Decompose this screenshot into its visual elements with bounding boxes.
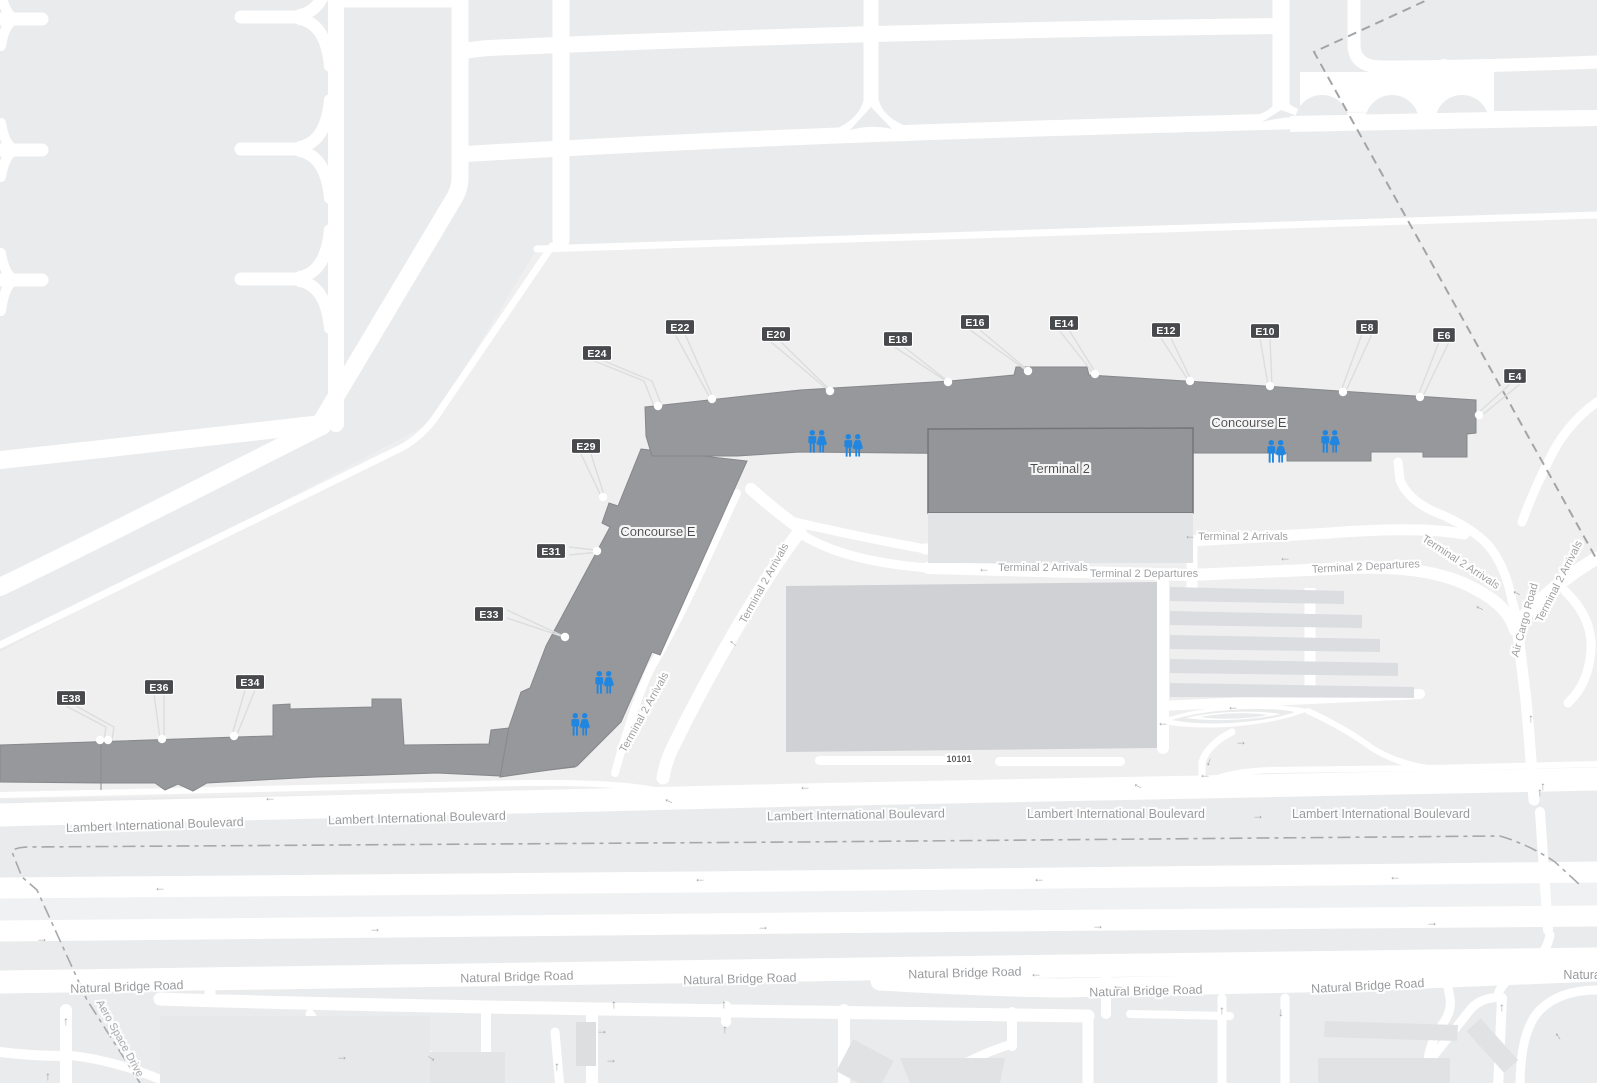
- svg-text:→: →: [605, 1052, 617, 1066]
- svg-text:←: ←: [1227, 699, 1239, 713]
- svg-text:↑: ↑: [554, 1059, 560, 1073]
- svg-text:←: ←: [1033, 871, 1045, 885]
- svg-text:Concourse E: Concourse E: [620, 524, 695, 539]
- svg-text:Lambert International Boulevar: Lambert International Boulevard: [1027, 807, 1205, 821]
- svg-text:Natural Bridge Road: Natural Bridge Road: [1089, 983, 1203, 1000]
- svg-text:E22: E22: [670, 322, 689, 334]
- svg-text:↑: ↑: [721, 997, 727, 1011]
- svg-text:←: ←: [1199, 767, 1211, 781]
- svg-text:↓: ↓: [1278, 1005, 1284, 1019]
- svg-text:E8: E8: [1360, 322, 1373, 334]
- svg-text:→: →: [1092, 918, 1104, 932]
- svg-text:E10: E10: [1255, 326, 1274, 338]
- svg-text:E38: E38: [61, 693, 80, 705]
- svg-text:E6: E6: [1437, 330, 1450, 342]
- svg-text:E14: E14: [1054, 318, 1073, 330]
- svg-text:←: ←: [694, 871, 706, 885]
- svg-text:←: ←: [1030, 966, 1042, 980]
- svg-text:↑: ↑: [1499, 1000, 1505, 1014]
- svg-text:→: →: [36, 931, 48, 945]
- svg-text:↑: ↑: [1537, 785, 1543, 799]
- svg-text:↑: ↑: [722, 1022, 728, 1036]
- svg-text:Natural Bridge Road: Natural Bridge Road: [908, 965, 1022, 982]
- svg-text:→: →: [369, 921, 381, 935]
- svg-text:Terminal 2 Departures: Terminal 2 Departures: [1090, 568, 1199, 580]
- svg-text:→: →: [1252, 808, 1264, 822]
- svg-text:←: ←: [1112, 978, 1124, 992]
- svg-text:E4: E4: [1508, 371, 1521, 383]
- svg-text:Terminal 2 Arrivals: Terminal 2 Arrivals: [1198, 531, 1288, 543]
- svg-text:←: ←: [264, 790, 276, 804]
- svg-text:Natural Bridge Road: Natural Bridge Road: [1563, 968, 1597, 982]
- svg-text:↑: ↑: [1219, 1003, 1225, 1017]
- svg-text:Natural Bridge Road: Natural Bridge Road: [460, 969, 574, 986]
- svg-text:→: →: [336, 1049, 348, 1063]
- svg-text:Terminal 2: Terminal 2: [1030, 461, 1090, 476]
- svg-text:E12: E12: [1156, 325, 1175, 337]
- svg-text:→: →: [1235, 734, 1247, 748]
- svg-text:←: ←: [978, 561, 990, 575]
- svg-text:→: →: [757, 919, 769, 933]
- svg-text:↑: ↑: [45, 1069, 51, 1083]
- svg-text:←: ←: [1157, 715, 1169, 729]
- svg-text:↑: ↑: [1528, 711, 1534, 725]
- svg-text:10101: 10101: [946, 754, 971, 764]
- svg-text:E20: E20: [766, 329, 785, 341]
- svg-text:Lambert International Boulevar: Lambert International Boulevard: [1292, 807, 1470, 821]
- svg-text:E33: E33: [479, 609, 498, 621]
- svg-text:←: ←: [1279, 550, 1291, 564]
- svg-text:←: ←: [799, 779, 811, 793]
- svg-text:E31: E31: [541, 546, 560, 558]
- svg-text:↑: ↑: [611, 997, 617, 1011]
- svg-text:Concourse E: Concourse E: [1211, 415, 1286, 430]
- svg-text:→: →: [1426, 915, 1438, 929]
- svg-text:E16: E16: [965, 317, 984, 329]
- svg-text:E29: E29: [576, 441, 595, 453]
- svg-text:E24: E24: [587, 348, 606, 360]
- svg-text:→: →: [596, 1023, 608, 1037]
- svg-text:Terminal 2 Arrivals: Terminal 2 Arrivals: [998, 562, 1088, 574]
- svg-text:←: ←: [154, 880, 166, 894]
- svg-text:E18: E18: [888, 334, 907, 346]
- svg-text:↑: ↑: [63, 1014, 69, 1028]
- svg-text:E36: E36: [149, 682, 168, 694]
- svg-text:E34: E34: [240, 677, 259, 689]
- svg-text:←: ←: [1184, 528, 1196, 542]
- svg-text:Natural Bridge Road: Natural Bridge Road: [683, 971, 797, 988]
- svg-text:←: ←: [1389, 869, 1401, 883]
